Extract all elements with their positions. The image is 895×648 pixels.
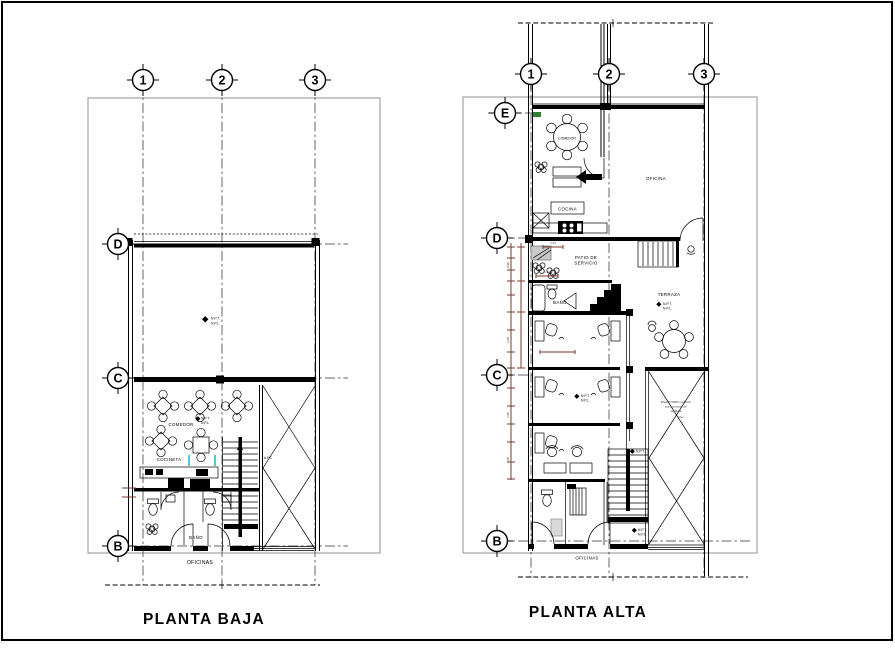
svg-text:piso: piso: [678, 415, 684, 419]
bano-right: [532, 285, 576, 311]
grid-lines-left: [103, 66, 348, 585]
grid-bubble-left-3: 3: [299, 64, 331, 96]
stair-wedge: [590, 284, 621, 312]
svg-text:1.00: 1.00: [506, 457, 510, 463]
grid-bubble-right-1: 1: [515, 58, 547, 90]
grid-bubble-left-B: B: [102, 530, 134, 562]
grid-bubble-left-1: 1: [127, 64, 159, 96]
dim-text-1: 1.27: [550, 241, 556, 245]
svg-text:1: 1: [528, 67, 535, 81]
grid-bubble-left-C: C: [102, 362, 134, 394]
grid-label-D: D: [113, 237, 122, 251]
oficina-chair: [687, 246, 695, 254]
void-x-left: [263, 386, 315, 549]
floor-plan-canvas: 1 2 3 D C B N.P.T. N.P.L. COMEDOR N.P.T.…: [0, 0, 895, 648]
svg-text:N.P.L.: N.P.L.: [663, 307, 672, 311]
oficinas-label-right: OFICINAS: [575, 556, 598, 561]
grid-bubble-left-2: 2: [206, 64, 238, 96]
svg-text:E: E: [501, 106, 509, 120]
grid-bubble-right-3: 3: [688, 58, 720, 90]
svg-text:N.P.L.: N.P.L.: [211, 322, 220, 326]
void-x-right: [649, 372, 704, 544]
planta-alta-plan: COMEDOR COCINA OFICINA PATIO DE SERVICIO…: [463, 19, 757, 621]
comedor-right: [533, 112, 604, 187]
svg-text:C: C: [492, 368, 501, 382]
grid-label-3: 3: [312, 73, 319, 87]
svg-text:2.05: 2.05: [506, 337, 510, 343]
svg-text:B: B: [492, 534, 501, 548]
stairs-upper-right: [638, 241, 679, 267]
architectural-drawing-sheet: 1 2 3 D C B N.P.T. N.P.L. COMEDOR N.P.T.…: [0, 0, 895, 648]
grid-label-C: C: [113, 371, 122, 385]
grid-lines-right: [481, 58, 752, 578]
svg-text:SERVICIO: SERVICIO: [574, 261, 598, 266]
svg-text:N.P.T.: N.P.T.: [663, 302, 672, 306]
grid-bubble-right-D: D: [481, 222, 513, 254]
grid-bubble-right-B: B: [481, 525, 513, 557]
svg-text:D: D: [492, 231, 501, 245]
bathrooms-left: [146, 495, 231, 534]
svg-text:N.P.L.: N.P.L.: [581, 399, 590, 403]
stairs-left: [223, 437, 259, 551]
oficinas-label-left: OFICINAS: [187, 560, 213, 566]
door-opening-marks: [189, 455, 215, 466]
svg-text:N.P.T.: N.P.T.: [581, 394, 590, 398]
patio-label: PATIO DE: [575, 255, 597, 260]
planta-alta-title: PLANTA ALTA: [529, 604, 647, 621]
npt-marker-main: N.P.T.: [211, 317, 220, 321]
svg-text:2: 2: [606, 67, 613, 81]
grid-bubble-right-2: 2: [593, 58, 625, 90]
cocineta-label: COCINETA: [157, 457, 182, 462]
plan-boundary-box-left: [88, 98, 380, 553]
void-note: ESCRITORIO LARGO por acomodo de periferi…: [661, 400, 692, 419]
grid-label-1: 1: [140, 73, 147, 87]
grid-bubbles-left: 1 2 3 D C B: [102, 64, 331, 562]
svg-text:N.P.T.: N.P.T.: [638, 528, 647, 532]
oficina-label: OFICINA: [646, 176, 666, 181]
bano-label-right: BAÑO: [553, 300, 567, 305]
ap1-label: A.P.1: [264, 456, 272, 460]
grid-label-2: 2: [219, 73, 226, 87]
green-marker: [533, 112, 541, 117]
terraza-label: TERRAZA: [658, 292, 681, 297]
terraza: [648, 321, 693, 359]
gray-door-leaf: [551, 519, 562, 536]
svg-text:1.05: 1.05: [506, 412, 510, 418]
grid-bubble-right-E: E: [489, 97, 521, 129]
comedor-label-right: COMEDOR: [558, 137, 576, 141]
grid-label-B: B: [113, 539, 122, 553]
bano-label-left: BAÑO: [189, 535, 203, 540]
bottom-rooms-right: [532, 484, 610, 544]
grid-bubble-left-D: D: [102, 228, 134, 260]
svg-text:3: 3: [701, 67, 708, 81]
oficina-door: [680, 218, 703, 241]
cocina-label: COCINA: [558, 207, 577, 212]
svg-text:por acomodo de: por acomodo de: [665, 405, 687, 409]
planta-baja-plan: 1 2 3 D C B N.P.T. N.P.L. COMEDOR N.P.T.…: [88, 64, 380, 628]
grid-bubble-right-C: C: [481, 359, 513, 391]
plan-boundary-box-right: [463, 97, 757, 553]
dimension-chain-right: 0.90 2.05 1.05 1.00: [506, 243, 525, 480]
comedor-furniture: [145, 390, 252, 461]
comedor-label: COMEDOR: [168, 422, 193, 427]
svg-text:0.90: 0.90: [506, 262, 510, 268]
svg-text:N.P.L.: N.P.L.: [201, 421, 210, 425]
dim-text-2: 1.10: [544, 270, 550, 274]
planta-baja-title: PLANTA BAJA: [143, 611, 265, 628]
stairs-lower-right: [608, 449, 648, 523]
svg-text:ESCRITORIO LARGO: ESCRITORIO LARGO: [661, 400, 692, 404]
svg-text:N.P.L.: N.P.L.: [638, 533, 647, 537]
svg-text:periferia: periferia: [671, 409, 682, 413]
svg-text:N.P.T.: N.P.T.: [636, 450, 645, 454]
